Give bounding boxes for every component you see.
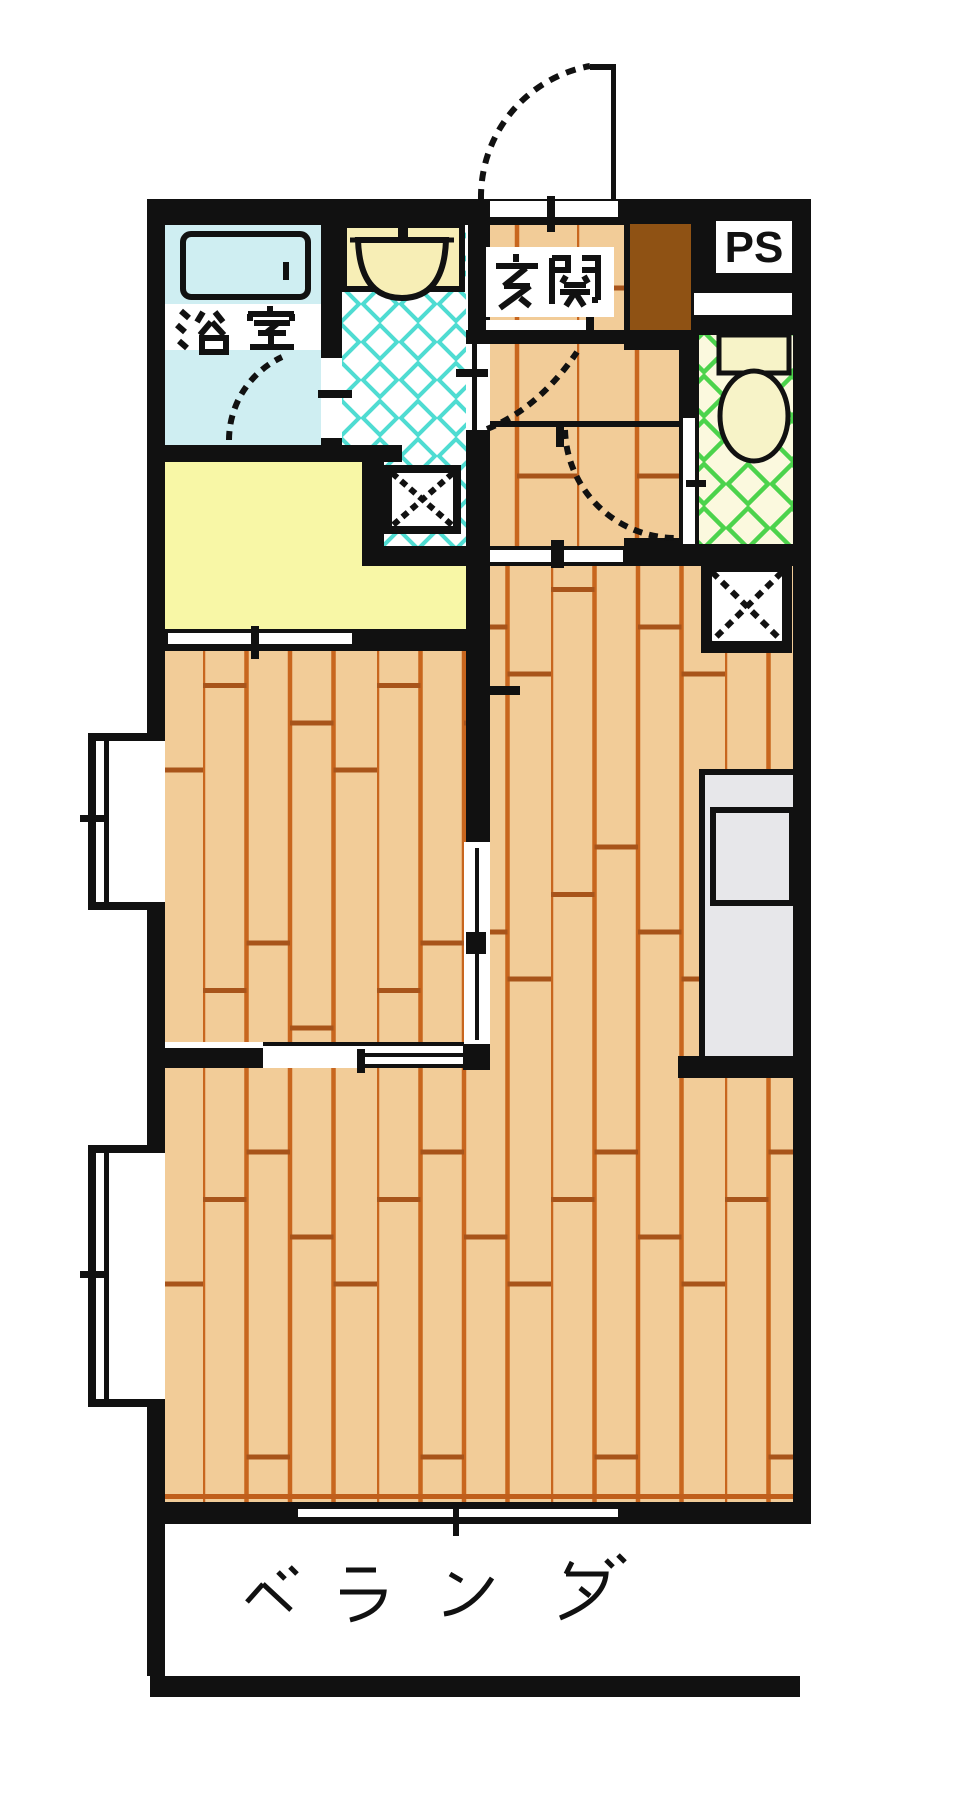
svg-text:PS: PS bbox=[725, 223, 784, 272]
